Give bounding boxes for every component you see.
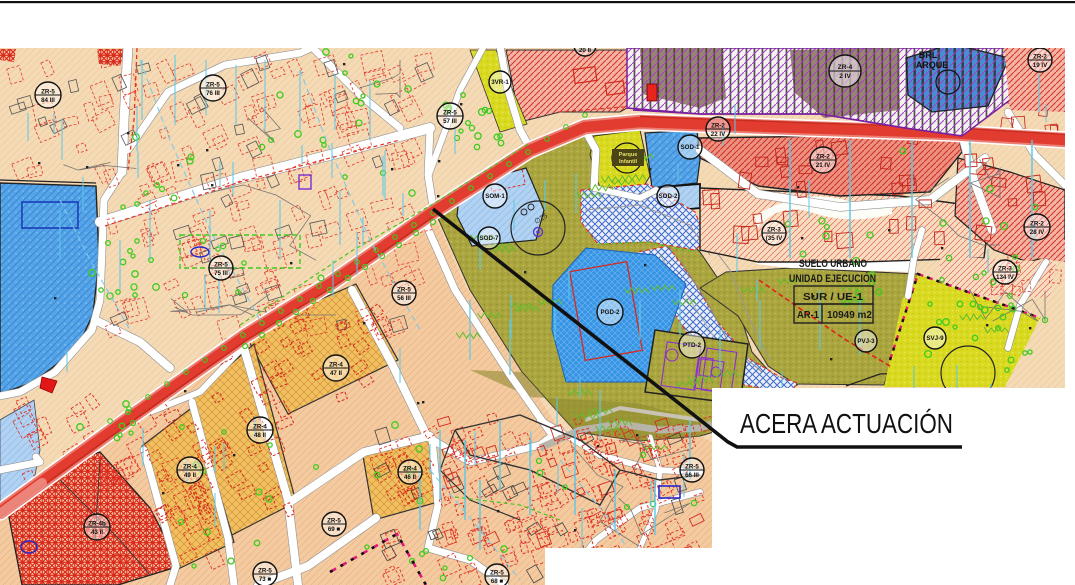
svg-text:134 IV: 134 IV [996, 274, 1015, 281]
svg-text:19 IV: 19 IV [1033, 62, 1048, 69]
svg-text:49 II: 49 II [184, 472, 196, 479]
svg-text:66 III: 66 III [685, 472, 699, 479]
svg-text:ZR-5: ZR-5 [214, 261, 228, 268]
svg-text:47 II: 47 II [330, 370, 342, 377]
svg-text:SVJ-9: SVJ-9 [926, 335, 944, 342]
svg-text:ZR-4: ZR-4 [838, 64, 853, 71]
svg-text:ZR-5: ZR-5 [397, 286, 411, 293]
svg-text:46 II: 46 II [404, 474, 416, 481]
svg-text:ZR-3: ZR-3 [767, 226, 781, 233]
svg-text:Parque: Parque [619, 152, 638, 158]
svg-text:AR-1: AR-1 [797, 310, 819, 321]
svg-text:PGD-2: PGD-2 [601, 309, 620, 316]
svg-text:ZR-5: ZR-5 [258, 567, 272, 574]
svg-text:(35 IV: (35 IV [766, 235, 783, 242]
svg-text:UNIDAD EJECUCIÓN: UNIDAD EJECUCIÓN [789, 272, 876, 285]
svg-text:BRL: BRL [919, 50, 938, 60]
svg-text:21 IV: 21 IV [816, 162, 831, 169]
svg-text:10949 m2: 10949 m2 [827, 310, 872, 321]
svg-text:75 III: 75 III [214, 270, 228, 277]
svg-text:48 II: 48 II [254, 432, 266, 439]
svg-text:2 IV: 2 IV [839, 73, 851, 80]
svg-text:ZR-2: ZR-2 [711, 122, 725, 129]
svg-text:PVJ-3: PVJ-3 [857, 338, 875, 345]
svg-text:ACERA ACTUACIÓN: ACERA ACTUACIÓN [740, 408, 953, 439]
svg-text:PTD-2: PTD-2 [683, 342, 701, 349]
svg-text:76 III: 76 III [206, 90, 220, 97]
svg-text:ZR-4: ZR-4 [329, 361, 343, 368]
svg-text:57 III: 57 III [443, 118, 457, 125]
svg-text:56 III: 56 III [397, 295, 411, 302]
svg-text:43 II: 43 II [91, 529, 103, 536]
svg-text:SUR / UE-1: SUR / UE-1 [803, 291, 863, 303]
svg-text:ZR-5: ZR-5 [327, 517, 341, 524]
svg-text:ZR-5: ZR-5 [206, 81, 220, 88]
svg-text:SOD-2: SOD-2 [659, 193, 678, 200]
svg-text:68 ■: 68 ■ [491, 578, 504, 585]
svg-text:ARQUE: ARQUE [916, 60, 949, 70]
svg-text:ZR-4b: ZR-4b [88, 520, 106, 527]
svg-text:ZR-2: ZR-2 [1033, 53, 1047, 60]
svg-text:ZR-2: ZR-2 [816, 153, 830, 160]
svg-text:3VR-1: 3VR-1 [491, 79, 509, 86]
svg-text:84 III: 84 III [41, 97, 55, 104]
svg-text:ZR-4: ZR-4 [403, 465, 417, 472]
svg-text:SOD-1: SOD-1 [681, 144, 700, 151]
svg-text:ZR-4: ZR-4 [183, 463, 197, 470]
svg-text:ZR-3: ZR-3 [998, 265, 1012, 272]
svg-text:SOD-7: SOD-7 [480, 235, 499, 242]
svg-text:73 ■: 73 ■ [259, 576, 272, 583]
svg-text:ZR-4: ZR-4 [253, 423, 267, 430]
svg-text:Infantil: Infantil [619, 159, 637, 165]
svg-text:ZR-5: ZR-5 [685, 463, 699, 470]
svg-text:28 IV: 28 IV [1030, 229, 1045, 236]
svg-text:ZR-5: ZR-5 [443, 109, 457, 116]
svg-text:ZR-5: ZR-5 [490, 569, 504, 576]
svg-text:SUELO URBANO: SUELO URBANO [799, 258, 867, 270]
svg-text:ZR-2: ZR-2 [1030, 220, 1044, 227]
svg-text:ZR-5: ZR-5 [41, 88, 55, 95]
svg-text:69 ■: 69 ■ [328, 526, 341, 533]
svg-text:SOM-1: SOM-1 [485, 193, 505, 200]
svg-text:22 IV: 22 IV [711, 131, 726, 138]
